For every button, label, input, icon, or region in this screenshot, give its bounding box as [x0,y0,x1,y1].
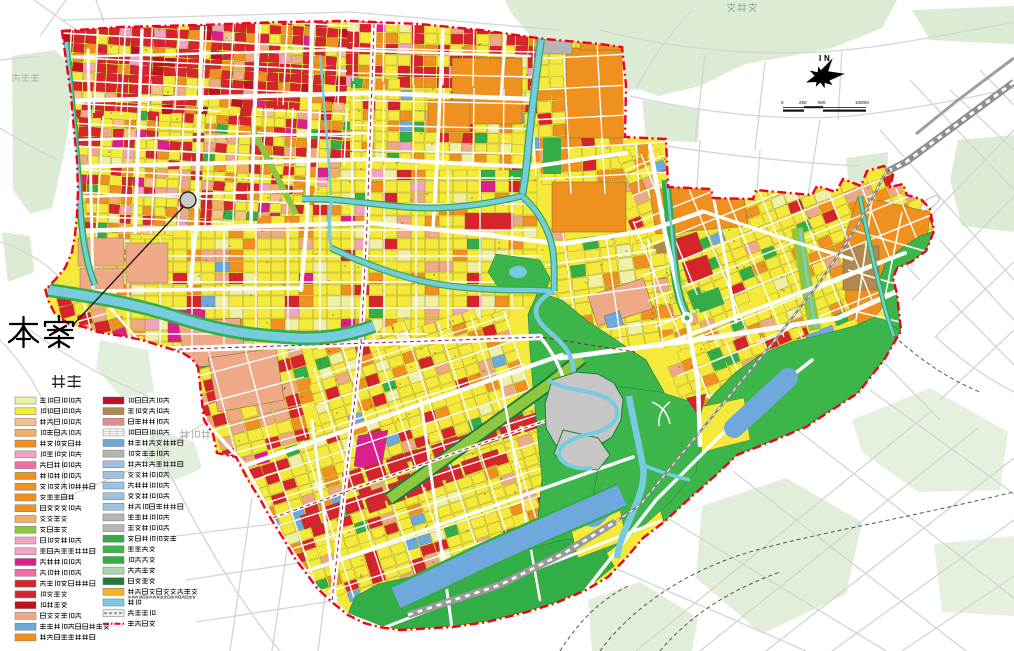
svg-text:N: N [824,54,830,63]
svg-text:1000M: 1000M [855,100,869,105]
svg-text:250: 250 [799,100,807,105]
svg-text:500: 500 [818,100,826,105]
